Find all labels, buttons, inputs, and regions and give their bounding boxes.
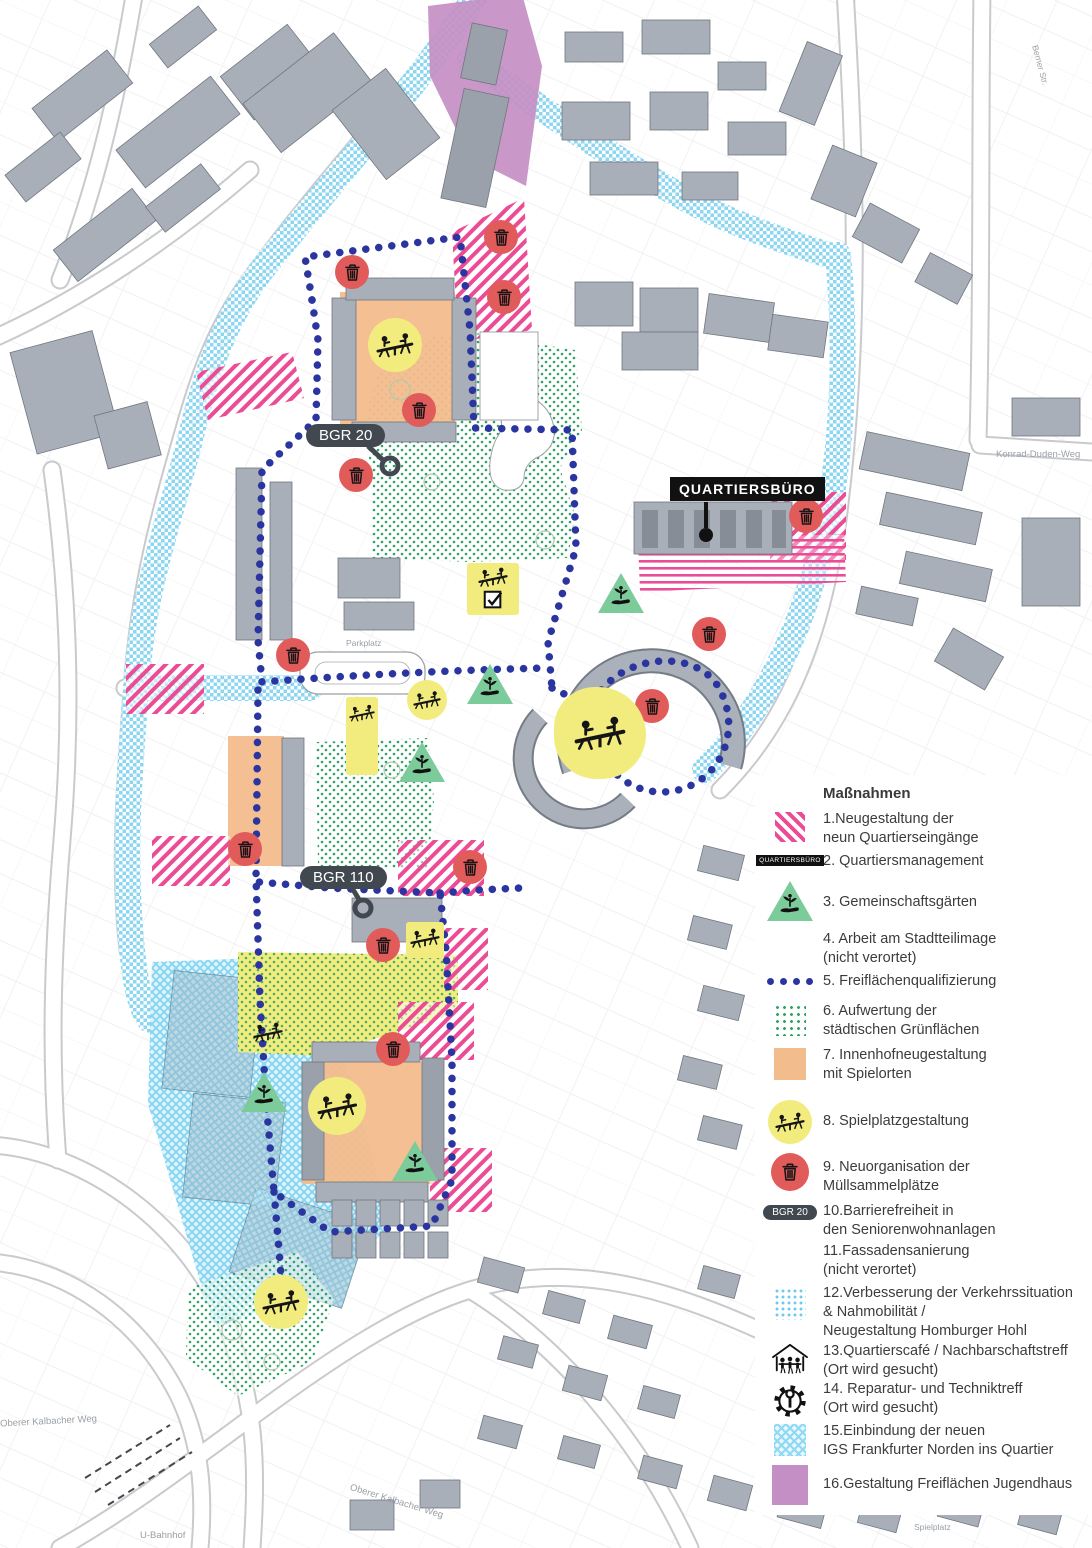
- quartiersbuero-callout: QUARTIERSBÜRO: [670, 477, 825, 501]
- playground-marker: [368, 318, 422, 372]
- cafe-house-icon: [769, 1342, 811, 1376]
- seesaw-icon: [376, 270, 414, 420]
- playground-square-marker: [346, 697, 378, 775]
- garden-triangle-icon: [767, 881, 813, 921]
- plant-hand-icon: [607, 583, 635, 609]
- playground-marker: [308, 1077, 366, 1135]
- trash-icon: [342, 262, 363, 283]
- seesaw-icon: [253, 1020, 283, 1044]
- playground-marker: [407, 680, 447, 720]
- green-dots-swatch: [774, 1004, 806, 1036]
- community-garden-marker: [241, 1072, 287, 1112]
- waste-marker: [789, 499, 823, 533]
- plant-hand-icon: [250, 1082, 278, 1108]
- lightblue-dots-swatch: [774, 1288, 806, 1320]
- trash-icon: [491, 227, 512, 248]
- bgr110-callout: BGR 110: [300, 866, 387, 889]
- orange-swatch: [774, 1048, 806, 1080]
- waste-marker: [376, 1032, 410, 1066]
- trash-icon: [235, 839, 256, 860]
- seesaw-icon: [574, 713, 626, 753]
- playground-square-marker: [406, 922, 444, 958]
- community-garden-marker: [598, 573, 644, 613]
- waste-marker: [453, 850, 487, 884]
- playground-marker: [554, 687, 646, 779]
- gear-wrench-icon: [771, 1382, 809, 1420]
- legend-panel: Maßnahmen 1.Neugestaltung der neun Quart…: [755, 775, 1092, 1515]
- seesaw-icon: [262, 1227, 300, 1377]
- site-plan-canvas: QUARTIERSBÜRO BGR 20 BGR 110 Parkplatz K…: [0, 0, 1092, 1548]
- waste-marker: [692, 617, 726, 651]
- seesaw-icon: [478, 565, 508, 589]
- playground-marker: [254, 1275, 308, 1329]
- konrad-duden-weg-label: Konrad-Duden-Weg: [996, 449, 1080, 460]
- parkplatz-label: Parkplatz: [346, 638, 381, 648]
- trash-icon: [373, 935, 394, 956]
- igs-crosshatch-swatch: [774, 1424, 806, 1456]
- bgr20-callout: BGR 20: [306, 424, 385, 447]
- purple-swatch: [772, 1465, 808, 1505]
- community-garden-marker: [392, 1141, 438, 1181]
- playground-circle-icon: [768, 1100, 812, 1144]
- trash-icon: [460, 857, 481, 878]
- waste-marker: [487, 280, 521, 314]
- seesaw-icon: [410, 926, 440, 950]
- checked-checkbox-icon: [482, 589, 504, 611]
- community-garden-marker: [467, 664, 513, 704]
- trash-icon: [796, 506, 817, 527]
- spielplatz-label: Spielplatz: [914, 1522, 951, 1532]
- waste-marker: [335, 255, 369, 289]
- waste-marker: [484, 220, 518, 254]
- plant-hand-icon: [476, 674, 504, 700]
- pink-hatch-swatch: [775, 812, 805, 842]
- trash-icon: [283, 645, 304, 666]
- waste-marker: [366, 928, 400, 962]
- waste-marker: [276, 638, 310, 672]
- u-bahnhof-label: U-Bahnhof: [140, 1530, 185, 1541]
- waste-marker: [228, 832, 262, 866]
- playground-square-marker: [467, 563, 519, 615]
- plant-hand-icon: [401, 1151, 429, 1177]
- seesaw-icon: [317, 1031, 358, 1181]
- trash-icon: [346, 465, 367, 486]
- bgr20-pill-icon: BGR 20: [763, 1205, 817, 1220]
- trash-icon: [383, 1039, 404, 1060]
- trash-icon: [699, 624, 720, 645]
- legend-title: Maßnahmen: [823, 785, 911, 802]
- trash-icon: [494, 287, 515, 308]
- quartiersbuero-chip: QUARTIERSBÜRO: [756, 855, 824, 866]
- trash-icon: [642, 696, 663, 717]
- blue-dotted-line-icon: [767, 978, 813, 985]
- waste-marker: [339, 458, 373, 492]
- seesaw-icon: [413, 625, 441, 775]
- seesaw-icon: [349, 702, 375, 724]
- waste-circle-icon: [771, 1153, 809, 1191]
- playground-icon-marker: [253, 1017, 283, 1047]
- jugendhaus-area: [428, 0, 542, 208]
